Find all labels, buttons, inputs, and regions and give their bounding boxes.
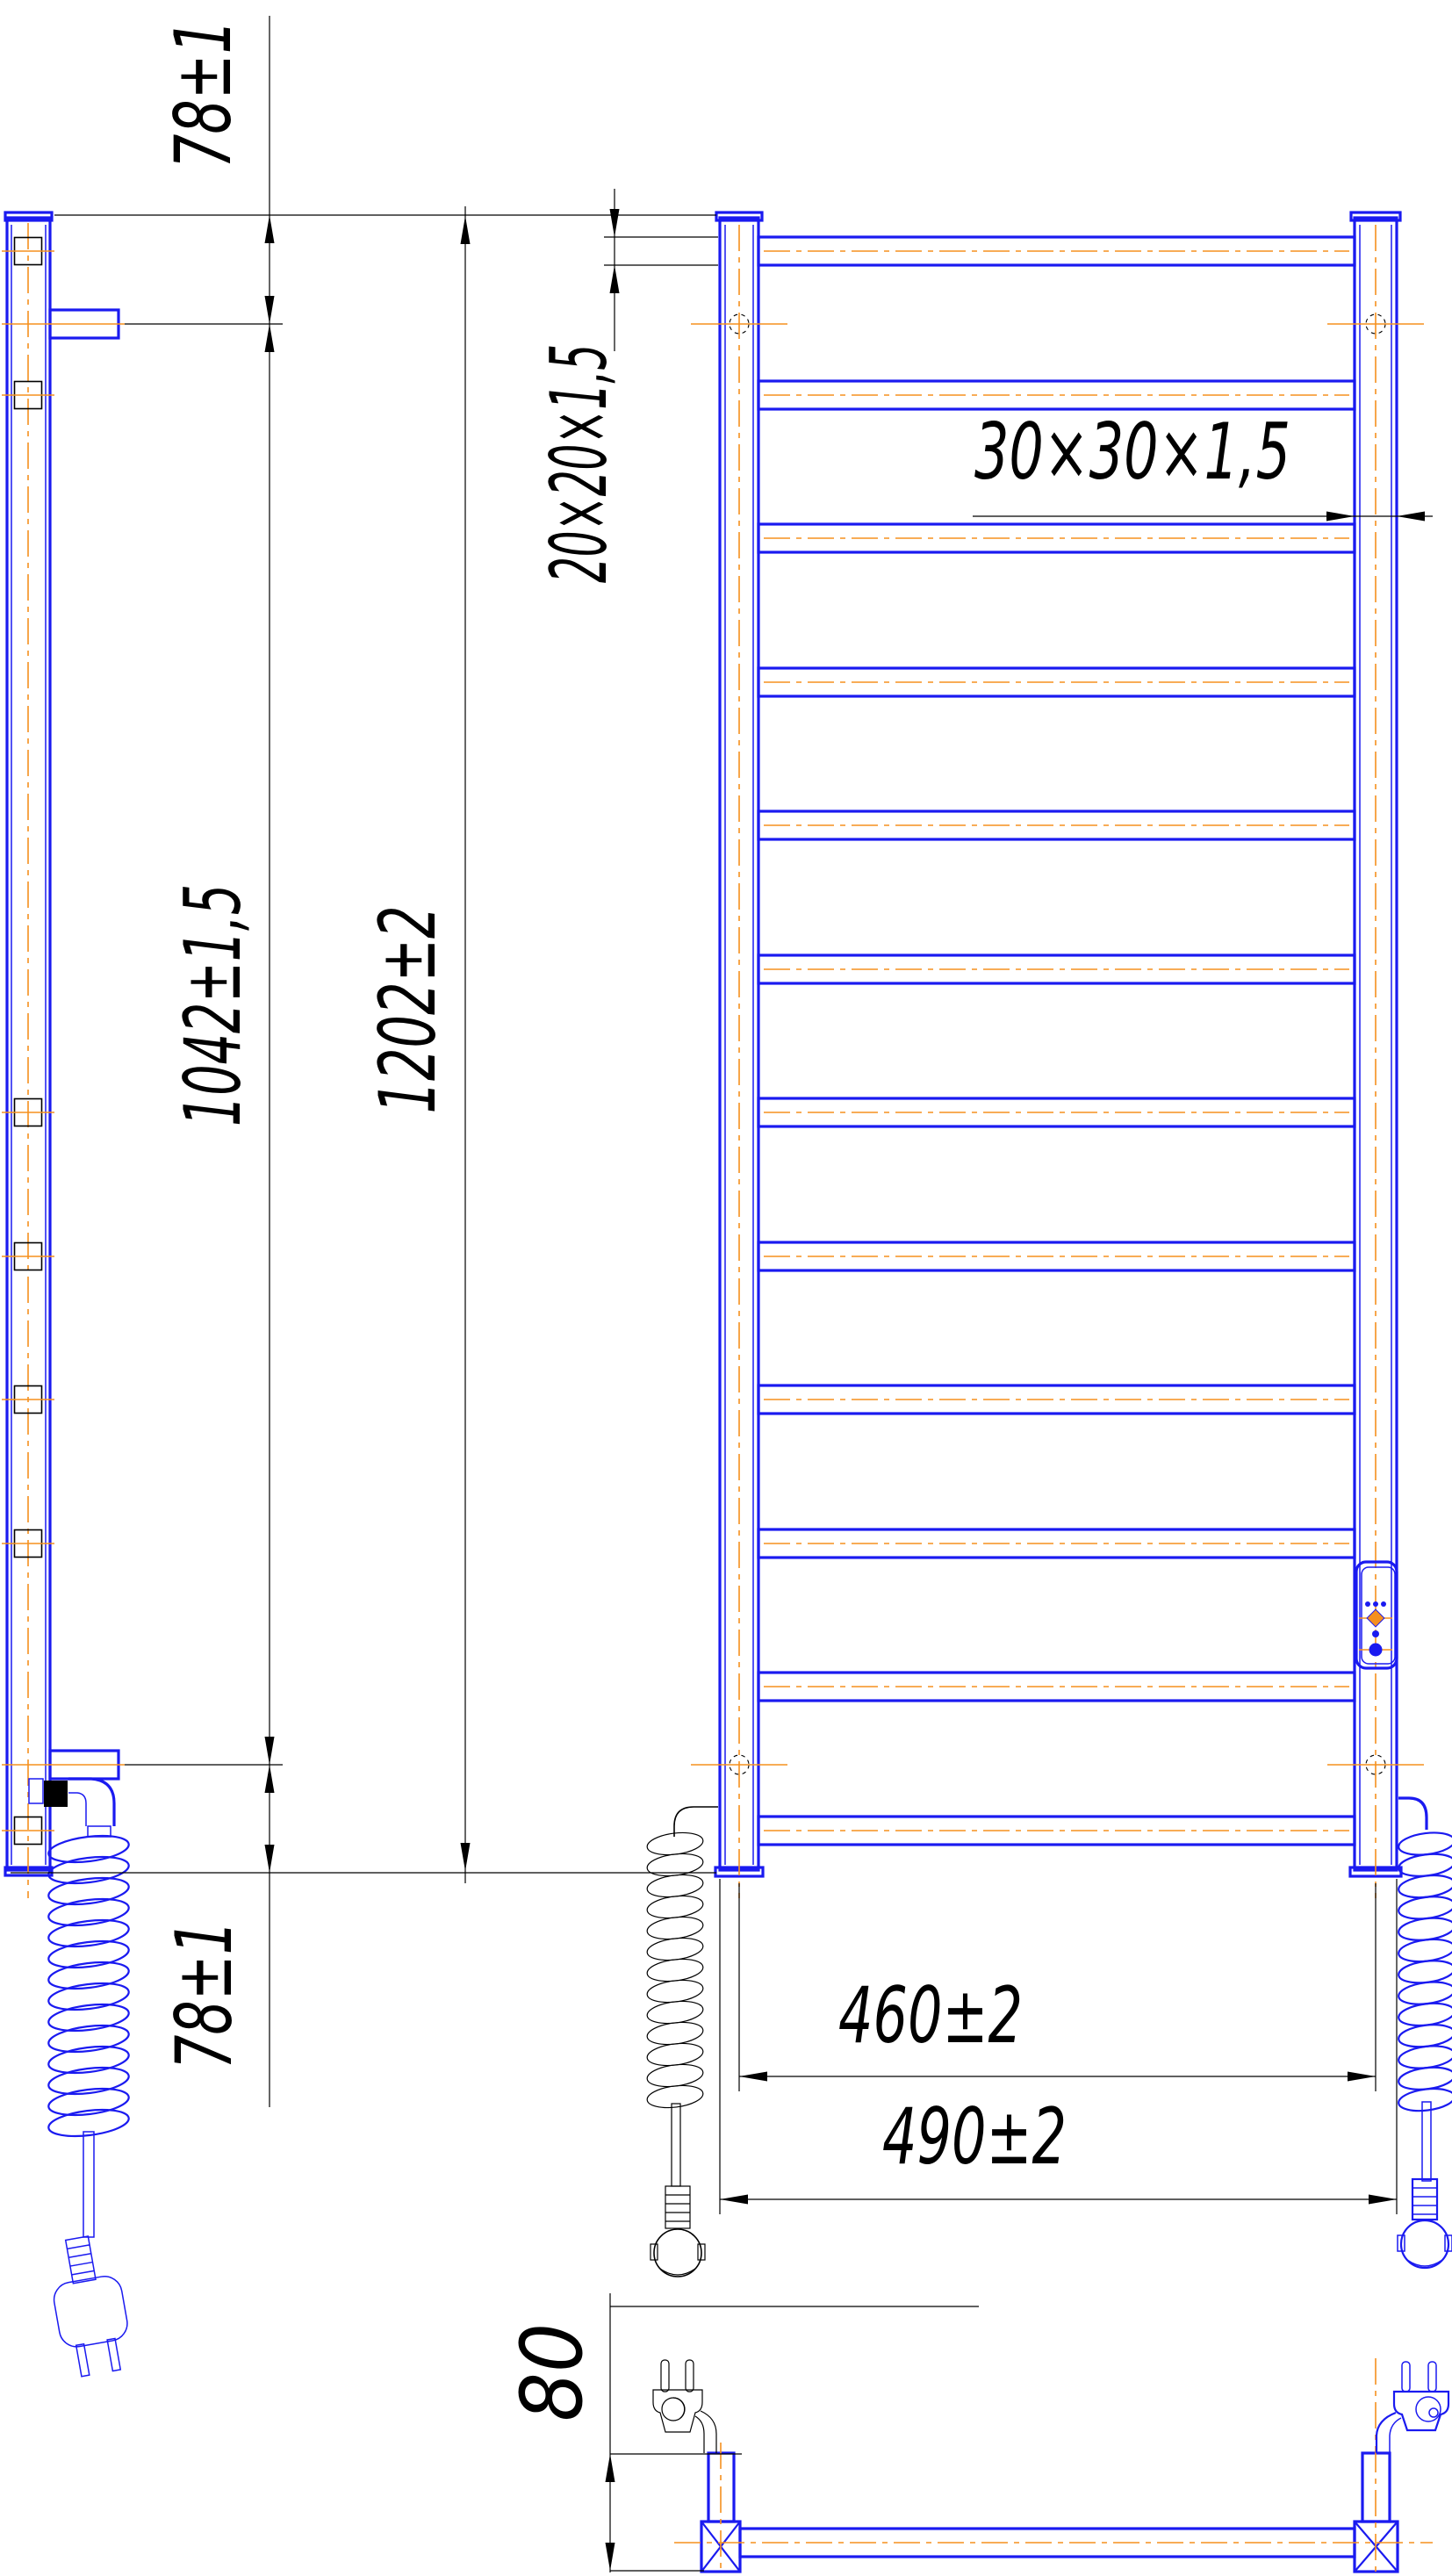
led-indicator xyxy=(1365,1601,1370,1607)
cable-coil xyxy=(646,1851,704,1879)
cable-coil xyxy=(1398,1830,1452,1858)
cable-coil xyxy=(1398,2086,1452,2114)
front-view xyxy=(646,212,1452,2277)
dimension-lines xyxy=(2,16,1433,2572)
power-led xyxy=(1367,1609,1384,1627)
cable-coil xyxy=(646,2062,704,2090)
cable-coil xyxy=(646,1956,704,1984)
cable-elbow xyxy=(1398,1798,1427,1830)
control-panel xyxy=(1356,1562,1397,1668)
drawing-sheet: 78±1 1042±1,5 1202±2 20×20×1,5 78±1 30×3… xyxy=(0,0,1452,2576)
cable-coil xyxy=(47,2063,131,2097)
dim-arrow xyxy=(265,296,275,324)
plug-strain-relief xyxy=(1412,2179,1437,2220)
cable-coil xyxy=(1398,1937,1452,1965)
dim-arrow xyxy=(1326,512,1355,522)
cable-coil xyxy=(1398,1915,1452,1943)
dim-top-offset-label: 78±1 xyxy=(158,19,248,169)
bottom-plug-left xyxy=(653,2360,716,2453)
dimension-labels: 78±1 1042±1,5 1202±2 20×20×1,5 78±1 30×3… xyxy=(158,19,1290,2421)
cable-coil xyxy=(646,1998,704,2026)
led-indicator xyxy=(1373,1601,1378,1607)
mount-holes xyxy=(691,314,1424,1774)
dim-arrow xyxy=(1348,2072,1376,2082)
plug-pin xyxy=(686,2360,694,2392)
cable-coil xyxy=(47,1937,131,1971)
sensor-dot xyxy=(1372,1630,1379,1637)
dim-arrow xyxy=(739,2072,767,2082)
dim-post-tube-label: 30×30×1,5 xyxy=(974,407,1290,497)
dim-arrow xyxy=(461,1843,471,1871)
cable-coil xyxy=(47,1853,131,1887)
dim-mount-span-label: 1042±1,5 xyxy=(168,884,258,1126)
dim-arrow xyxy=(610,265,620,293)
cable-coil xyxy=(47,1958,131,1992)
dim-rung-tube-label: 20×20×1,5 xyxy=(534,344,624,583)
dim-arrow xyxy=(606,2543,615,2571)
cable-coil xyxy=(646,1914,704,1942)
dim-arrow xyxy=(461,216,471,244)
cable-coil xyxy=(646,1935,704,1963)
cable-coil xyxy=(47,1979,131,2013)
coiled-cable xyxy=(1398,1830,1452,2113)
plug-pin xyxy=(1402,2362,1410,2392)
dim-depth-label: 80 xyxy=(503,2323,601,2421)
cable-coil xyxy=(47,1831,131,1866)
cable-coil xyxy=(1398,2001,1452,2029)
heater-hatched-block xyxy=(44,1781,68,1807)
led-indicator xyxy=(1381,1601,1386,1607)
cord-to-heater xyxy=(701,2411,716,2453)
plug-strain-relief xyxy=(66,2236,96,2284)
cable-coil xyxy=(646,1830,704,1858)
plug-pin xyxy=(661,2360,669,2392)
dimension-arrows xyxy=(265,209,1426,2571)
coiled-cable xyxy=(646,1830,704,2111)
control-button xyxy=(1369,1644,1383,1657)
cable-coil xyxy=(47,2021,131,2055)
cable-cord xyxy=(672,2104,680,2186)
plug-pin xyxy=(76,2344,90,2377)
cable-coil xyxy=(646,1893,704,1921)
dim-arrow xyxy=(1397,512,1425,522)
dim-overall-height-label: 1202±2 xyxy=(363,906,453,1114)
dim-arrow xyxy=(265,1845,275,1873)
cable-coil xyxy=(47,1916,131,1950)
coiled-cable xyxy=(47,1831,131,2140)
cord-to-heater xyxy=(1377,2413,1396,2453)
front-right-cable xyxy=(1398,1798,1452,2268)
cable-coil xyxy=(1398,1851,1452,1879)
cable-coil xyxy=(1398,1979,1452,2007)
cable-coil xyxy=(47,2000,131,2034)
cable-coil xyxy=(646,1977,704,2005)
side-view xyxy=(2,212,135,2378)
cable-coil xyxy=(47,1895,131,1929)
cable-coil xyxy=(646,2040,704,2069)
dim-mount-width-label: 460±2 xyxy=(838,1970,1023,2061)
dim-arrow xyxy=(265,324,275,352)
cable-coil xyxy=(646,2083,704,2111)
cable-coil xyxy=(47,2084,131,2119)
cable-coil xyxy=(47,2105,131,2140)
cable-coil xyxy=(1398,2064,1452,2092)
front-left-cable xyxy=(646,1807,718,2277)
cable-cord xyxy=(83,2132,94,2237)
plug-pin xyxy=(107,2338,120,2371)
bottom-view xyxy=(653,2358,1448,2574)
cable-coil xyxy=(646,1872,704,1900)
cable-coil xyxy=(1398,1873,1452,1901)
cable-coil xyxy=(1398,1894,1452,1922)
cable-elbow-inner xyxy=(68,1793,86,1826)
power-plug-side xyxy=(44,2232,135,2378)
dim-bottom-offset-label: 78±1 xyxy=(159,1920,249,2069)
plug-body xyxy=(653,2390,702,2432)
cable-elbow-outer xyxy=(68,1779,114,1826)
plug-strain-relief xyxy=(665,2186,690,2228)
cable-coil xyxy=(1398,1958,1452,1986)
cable-coil xyxy=(646,2019,704,2047)
dim-arrow xyxy=(720,2195,748,2205)
dim-arrow xyxy=(610,209,620,237)
dim-arrow xyxy=(1369,2195,1397,2205)
cable-coil xyxy=(1398,2043,1452,2071)
cable-coil xyxy=(47,2042,131,2076)
dim-overall-width-label: 490±2 xyxy=(882,2091,1067,2182)
cable-coil xyxy=(1398,2022,1452,2050)
dim-arrow xyxy=(265,1737,275,1765)
cable-cord xyxy=(1422,2102,1431,2181)
heater-terminal xyxy=(29,1779,43,1803)
bottom-plug-right xyxy=(1377,2362,1448,2453)
dim-arrow xyxy=(606,2454,615,2482)
dim-arrow xyxy=(265,1765,275,1793)
plug-body xyxy=(51,2274,130,2349)
plug-pin xyxy=(1428,2362,1436,2392)
dim-arrow xyxy=(265,215,275,243)
cable-coil xyxy=(47,1874,131,1908)
